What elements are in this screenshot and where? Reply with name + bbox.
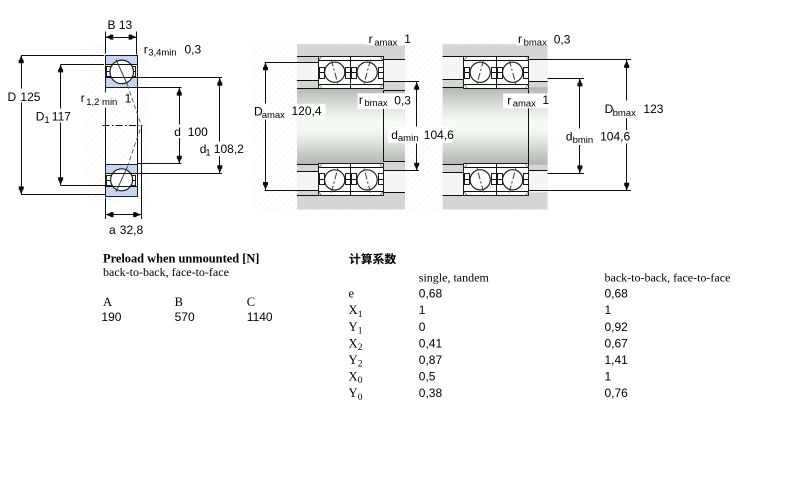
svg-text:104,6: 104,6 (424, 128, 454, 142)
svg-text:X: X (349, 303, 358, 317)
svg-text:0,68: 0,68 (605, 287, 629, 301)
svg-text:1: 1 (542, 93, 549, 107)
svg-text:bmin: bmin (573, 135, 594, 146)
svg-text:117: 117 (52, 110, 71, 124)
svg-text:32,8: 32,8 (120, 223, 144, 237)
svg-text:D: D (8, 90, 17, 104)
svg-text:0,76: 0,76 (605, 386, 629, 400)
svg-text:a: a (109, 223, 116, 237)
svg-text:1: 1 (419, 303, 426, 317)
svg-text:3,4min: 3,4min (148, 48, 177, 59)
svg-text:B: B (175, 295, 183, 309)
svg-text:0,5: 0,5 (419, 370, 436, 384)
svg-text:bmax: bmax (364, 98, 387, 109)
svg-text:Y: Y (349, 320, 358, 334)
svg-text:0: 0 (358, 393, 363, 403)
svg-text:0,41: 0,41 (419, 336, 443, 350)
svg-text:100: 100 (188, 125, 208, 139)
svg-text:e: e (349, 287, 355, 301)
svg-text:108,2: 108,2 (214, 142, 244, 156)
svg-text:0: 0 (358, 376, 363, 386)
svg-text:0,92: 0,92 (605, 320, 629, 334)
svg-text:d: d (566, 130, 573, 144)
svg-text:r: r (359, 93, 363, 107)
svg-text:back-to-back, face-to-face: back-to-back, face-to-face (605, 271, 731, 285)
svg-text:0,67: 0,67 (605, 336, 629, 350)
svg-text:0: 0 (419, 320, 426, 334)
svg-text:r: r (518, 32, 522, 46)
svg-text:bmax: bmax (613, 108, 636, 119)
svg-text:r: r (81, 91, 85, 105)
svg-text:B 13: B 13 (108, 18, 133, 32)
svg-text:0,3: 0,3 (394, 93, 411, 107)
svg-text:amax: amax (513, 99, 536, 110)
svg-text:r: r (507, 94, 511, 108)
svg-text:0,68: 0,68 (419, 287, 443, 301)
svg-text:back-to-back, face-to-face: back-to-back, face-to-face (103, 265, 229, 279)
svg-text:1: 1 (205, 148, 210, 159)
svg-text:r: r (144, 42, 148, 56)
svg-text:r: r (369, 32, 373, 46)
svg-text:amax: amax (262, 110, 285, 121)
svg-text:1: 1 (605, 303, 612, 317)
svg-text:1: 1 (404, 32, 411, 46)
svg-text:X: X (349, 336, 358, 350)
svg-text:bmax: bmax (524, 37, 547, 48)
svg-text:1: 1 (358, 310, 363, 320)
svg-text:0,3: 0,3 (554, 33, 571, 47)
svg-text:104,6: 104,6 (600, 130, 630, 144)
svg-text:2: 2 (358, 343, 363, 353)
svg-text:1: 1 (605, 370, 612, 384)
svg-text:A: A (103, 295, 112, 309)
svg-text:1: 1 (125, 92, 132, 106)
svg-text:190: 190 (101, 310, 121, 324)
svg-text:Y: Y (349, 353, 358, 367)
svg-text:1: 1 (44, 115, 49, 126)
svg-text:0,87: 0,87 (419, 353, 443, 367)
svg-text:1140: 1140 (247, 310, 273, 324)
svg-text:0,38: 0,38 (419, 386, 443, 400)
svg-text:2: 2 (358, 360, 363, 370)
svg-text:D: D (36, 110, 45, 124)
svg-text:120,4: 120,4 (292, 104, 322, 118)
svg-text:1: 1 (358, 326, 363, 336)
svg-text:1,2 min: 1,2 min (86, 97, 117, 108)
svg-text:0,3: 0,3 (185, 42, 202, 56)
svg-text:single, tandem: single, tandem (419, 271, 490, 285)
svg-text:1,41: 1,41 (605, 353, 629, 367)
svg-text:125: 125 (20, 90, 40, 104)
svg-text:123: 123 (643, 102, 663, 116)
svg-text:C: C (247, 295, 255, 309)
svg-text:Y: Y (349, 386, 358, 400)
svg-text:amin: amin (398, 133, 419, 144)
svg-text:Preload when unmounted [N]: Preload when unmounted [N] (103, 252, 259, 266)
svg-text:X: X (349, 370, 358, 384)
svg-text:570: 570 (175, 310, 195, 324)
svg-text:amax: amax (374, 37, 397, 48)
svg-text:d: d (174, 125, 181, 139)
